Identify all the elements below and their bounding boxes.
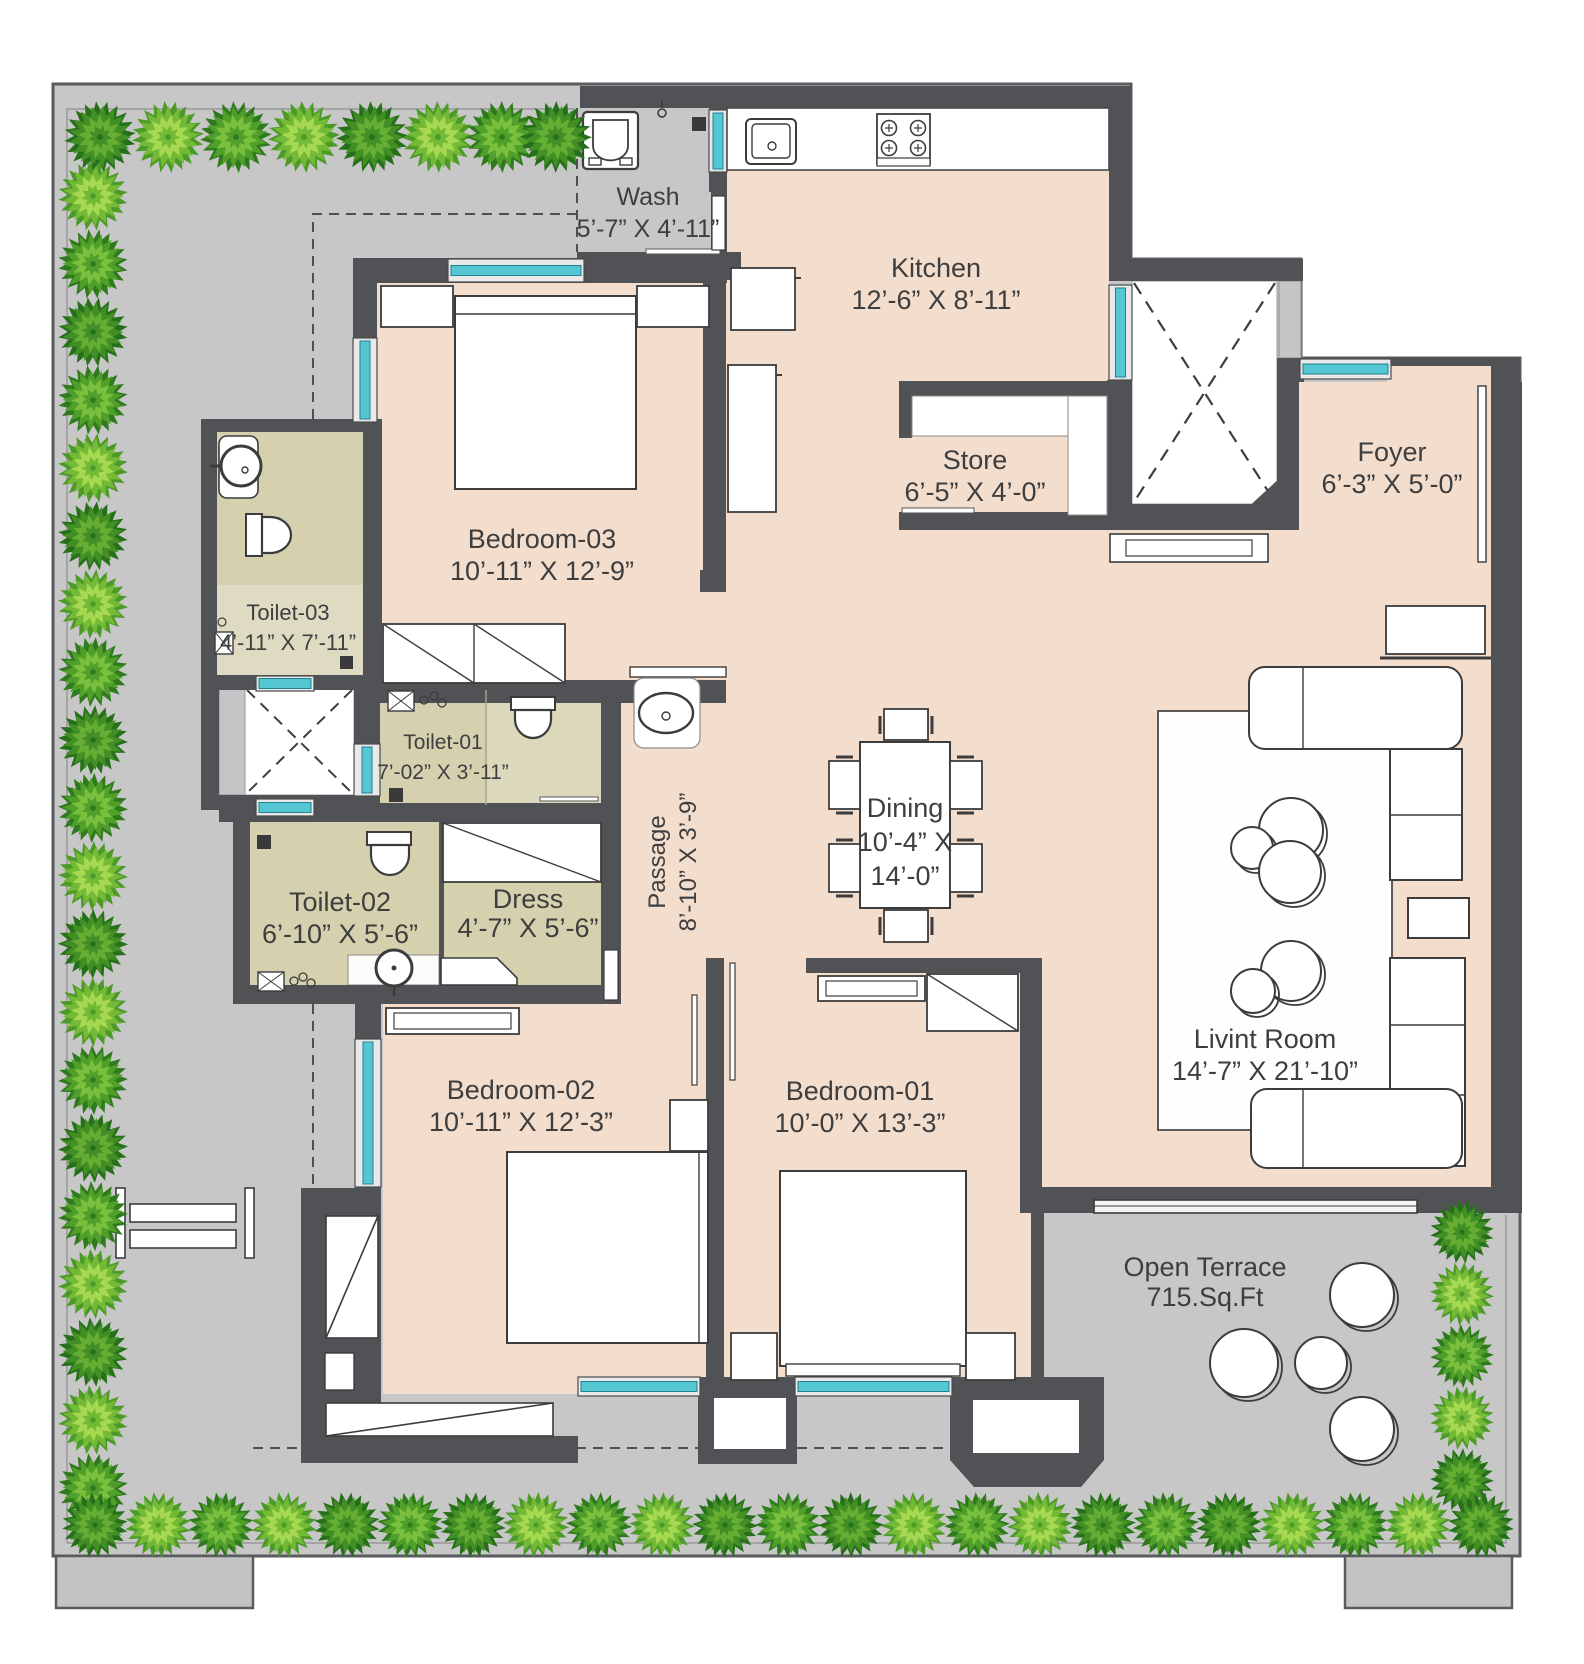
svg-text:Passage: Passage [644,815,671,908]
svg-text:8’-10” X 3’-9”: 8’-10” X 3’-9” [675,793,702,932]
svg-text:Dining10’-4” X14’-0”: Dining10’-4” X14’-0” [858,793,953,891]
svg-text:Open Terrace715.Sq.Ft: Open Terrace715.Sq.Ft [1123,1252,1286,1312]
